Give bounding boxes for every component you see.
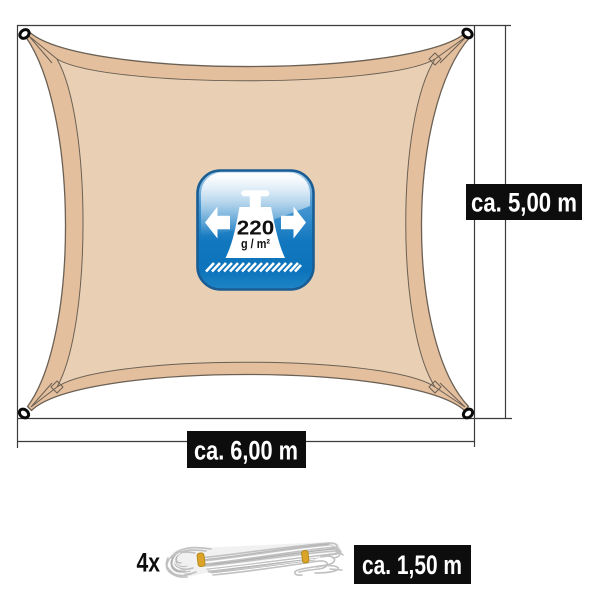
svg-text:g / m²: g / m² [241, 236, 271, 251]
svg-text:ca. 5,00 m: ca. 5,00 m [471, 188, 577, 218]
svg-text:ca. 1,50 m: ca. 1,50 m [362, 550, 462, 580]
svg-text:4x: 4x [137, 548, 161, 578]
svg-text:ca. 6,00 m: ca. 6,00 m [194, 436, 298, 466]
